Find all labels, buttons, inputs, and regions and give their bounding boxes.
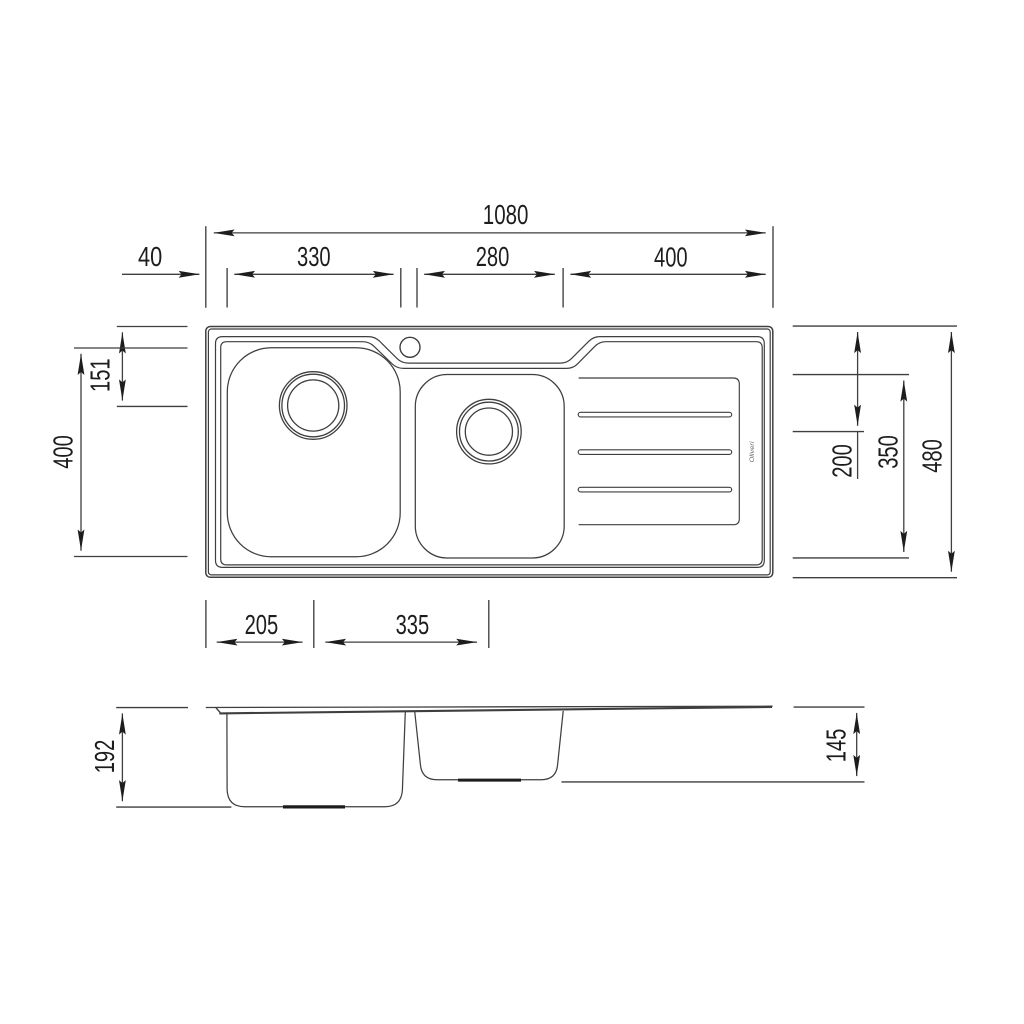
svg-text:480: 480: [917, 439, 948, 473]
svg-text:192: 192: [89, 740, 120, 774]
svg-text:200: 200: [827, 444, 858, 478]
svg-text:400: 400: [654, 242, 688, 273]
svg-text:151: 151: [85, 358, 116, 392]
svg-text:205: 205: [245, 609, 279, 640]
svg-text:400: 400: [48, 435, 79, 469]
svg-text:145: 145: [821, 729, 852, 763]
svg-text:335: 335: [396, 609, 430, 640]
svg-text:330: 330: [297, 241, 331, 272]
svg-text:40: 40: [138, 241, 162, 272]
svg-text:350: 350: [872, 435, 903, 469]
svg-text:Oliveri: Oliveri: [749, 441, 756, 463]
svg-text:280: 280: [476, 241, 510, 272]
svg-text:1080: 1080: [483, 199, 529, 230]
